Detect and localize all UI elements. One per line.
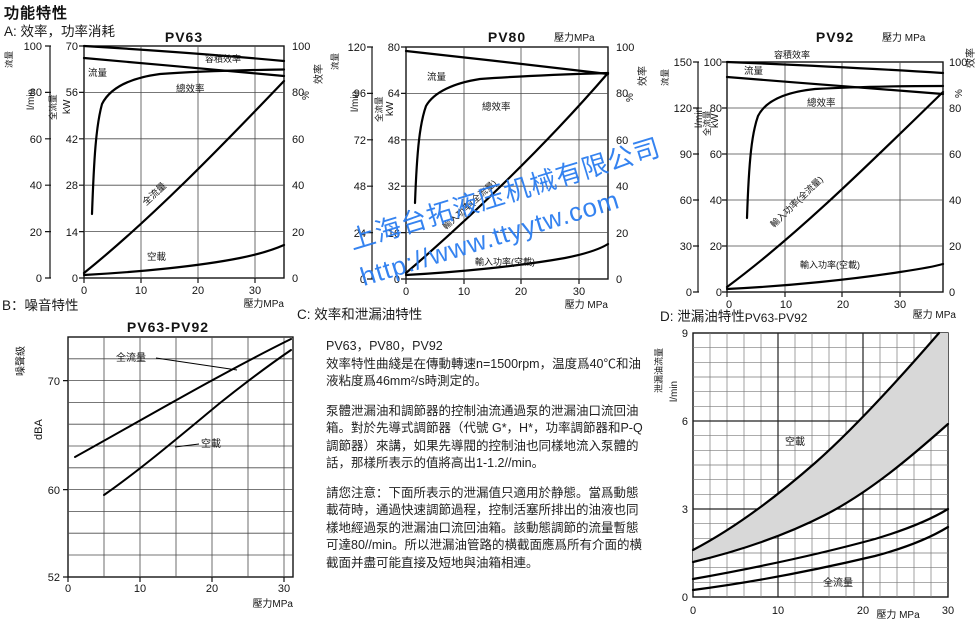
flow-curve-label: 流量 xyxy=(427,71,447,83)
eff-axis-title: 效率 xyxy=(312,64,325,84)
x-axis-title: 壓力MPa xyxy=(252,597,293,610)
axis-ticks xyxy=(63,381,284,582)
eff-tick: 40 xyxy=(949,195,961,207)
power-tick: 70 xyxy=(66,41,78,53)
power-axis-title: 全流量 xyxy=(48,94,58,120)
gridlines xyxy=(84,46,284,278)
power-tick: 16 xyxy=(388,228,400,240)
power-tick: 48 xyxy=(388,135,400,147)
x-tick: 20 xyxy=(206,583,218,595)
no-load-noise-curve xyxy=(104,350,291,495)
flow-axis-unit: l/min xyxy=(26,89,37,110)
section-c-text: PV63，PV80，PV92 效率特性曲綫是在傳動轉速n=1500rpm，温度爲… xyxy=(326,338,648,584)
flow-axis-title: 流量 xyxy=(660,68,670,86)
flow-tick: 24 xyxy=(354,228,366,240)
input-power-full-label: 全流量 xyxy=(140,180,169,209)
no-load-label: 空載 xyxy=(201,437,221,450)
paragraph-2: 泵體泄漏油和調節器的控制油流通過泵的泄漏油口流回油箱。對於先導式調節器（代號 G… xyxy=(326,403,648,473)
x-tick: 20 xyxy=(192,285,204,297)
x-tick: 20 xyxy=(515,286,527,298)
pv92-chart: PV92 壓力 MPa 容積效率 流量 總效率 輸入功率(全流量) 輸入功率(空… xyxy=(660,28,980,320)
flow-tick: 100 xyxy=(24,41,42,53)
axis-ticks xyxy=(693,62,900,297)
no-load-leader-line xyxy=(175,444,199,447)
eff-tick: 60 xyxy=(949,149,961,161)
eff-axis-title: 效率 xyxy=(964,48,977,68)
chart-title: PV92 xyxy=(816,29,854,45)
full-flow-noise-curve xyxy=(75,339,291,457)
flow-tick: 0 xyxy=(36,273,42,285)
x-tick: 10 xyxy=(780,299,792,311)
axis-ticks xyxy=(45,46,255,283)
power-tick: 20 xyxy=(710,241,722,253)
x-tick: 10 xyxy=(458,286,470,298)
pv80-chart: PV80 壓力MPa 流量 總效率 輸入功率(全流量) 輸入功率(空載) 流量 … xyxy=(330,28,660,320)
input-power-full-curve xyxy=(727,92,943,287)
power-tick: 56 xyxy=(66,87,78,99)
full-flow-label: 全流量 xyxy=(823,576,853,589)
gridlines xyxy=(727,62,943,292)
power-tick: 80 xyxy=(710,103,722,115)
total-efficiency-label: 總效率 xyxy=(176,83,205,95)
x-tick: 30 xyxy=(278,583,290,595)
input-power-idle-label: 輸入功率(空載) xyxy=(800,259,860,270)
flow-curve xyxy=(406,51,608,74)
power-axis-unit: kW xyxy=(710,113,721,128)
y-tick: 60 xyxy=(48,485,60,497)
power-tick: 0 xyxy=(72,273,78,285)
eff-tick: 40 xyxy=(616,181,628,193)
power-tick: 32 xyxy=(388,181,400,193)
eff-axis-unit: % xyxy=(954,89,965,98)
x-axis-title-top: 壓力 MPa xyxy=(882,31,926,44)
y-axis-title: 噪聲級 xyxy=(14,346,27,376)
flow-tick: 90 xyxy=(680,149,692,161)
x-tick: 0 xyxy=(81,285,87,297)
flow-tick: 0 xyxy=(686,287,692,299)
input-power-idle-curve xyxy=(84,245,284,275)
eff-tick: 0 xyxy=(616,274,622,286)
x-tick: 0 xyxy=(403,286,409,298)
total-efficiency-label: 總效率 xyxy=(482,101,511,113)
pv63-chart: PV63 容積效率 流量 總效率 全流量 空載 流量 100 80 60 40 … xyxy=(0,28,332,320)
datasheet-page: 功能特性 A: 效率，功率消耗 B：噪音特性 C: 效率和泄漏油特性 D: 泄漏… xyxy=(0,0,980,628)
no-load-label: 空載 xyxy=(785,435,805,448)
y-tick: 9 xyxy=(682,328,688,340)
input-power-full-curve xyxy=(84,81,284,273)
flow-tick: 120 xyxy=(674,103,692,115)
eff-axis-unit: % xyxy=(301,91,312,100)
flow-tick: 0 xyxy=(360,274,366,286)
power-tick: 40 xyxy=(710,195,722,207)
eff-tick: 40 xyxy=(292,180,304,192)
x-tick: 30 xyxy=(942,605,954,617)
leakage-chart: 空載 全流量 泄漏油流量 l/min 9 6 3 0 0 10 20 30 壓力… xyxy=(650,318,980,628)
eff-tick: 100 xyxy=(292,41,310,53)
eff-axis-title: 效率 xyxy=(636,66,649,86)
full-flow-leader-line xyxy=(156,358,237,370)
flow-axis-title: 流量 xyxy=(330,52,340,70)
y-tick: 70 xyxy=(48,376,60,388)
flow-tick: 60 xyxy=(680,195,692,207)
flow-tick: 150 xyxy=(674,57,692,69)
power-axis-unit: kW xyxy=(385,101,396,116)
x-tick: 30 xyxy=(249,285,261,297)
input-power-idle-label: 輸入功率(空載) xyxy=(475,256,535,267)
flow-axis-unit: l/min xyxy=(350,91,361,112)
chart-title: PV80 xyxy=(488,29,526,45)
y-tick: 3 xyxy=(682,504,688,516)
y-tick: 52 xyxy=(48,572,60,584)
x-tick: 30 xyxy=(894,299,906,311)
paragraph-1: 效率特性曲綫是在傳動轉速n=1500rpm，温度爲40℃和油液粘度爲46mm²/… xyxy=(326,356,648,391)
total-efficiency-curve xyxy=(747,86,943,218)
eff-tick: 20 xyxy=(949,241,961,253)
y-axis-unit: l/min xyxy=(669,381,680,402)
eff-tick: 20 xyxy=(292,227,304,239)
flow-tick: 72 xyxy=(354,135,366,147)
power-tick: 80 xyxy=(388,42,400,54)
x-tick: 20 xyxy=(837,299,849,311)
eff-tick: 60 xyxy=(292,134,304,146)
power-tick: 64 xyxy=(388,88,400,100)
x-axis-title: 壓力MPa xyxy=(243,297,284,310)
total-efficiency-label: 總效率 xyxy=(807,97,836,109)
flow-tick: 40 xyxy=(30,180,42,192)
x-axis-title-top: 壓力MPa xyxy=(554,31,595,44)
power-tick: 14 xyxy=(66,227,78,239)
paragraph-3: 請您注意：下面所表示的泄漏值只適用於静態。當爲動態載荷時，通過快速調節過程，控制… xyxy=(326,485,648,573)
y-tick: 0 xyxy=(682,592,688,604)
flow-tick: 20 xyxy=(30,227,42,239)
power-tick: 100 xyxy=(704,57,722,69)
power-axis-unit: kW xyxy=(62,99,73,114)
volumetric-efficiency-label: 容積效率 xyxy=(774,49,810,60)
input-power-full-label: 輸入功率(全流量) xyxy=(440,177,499,231)
chart-title: PV63-PV92 xyxy=(127,319,209,335)
flow-tick: 48 xyxy=(354,181,366,193)
x-tick: 10 xyxy=(135,285,147,297)
x-tick: 0 xyxy=(65,583,71,595)
input-power-full-label: 輸入功率(全流量) xyxy=(768,174,825,230)
chart-title: PV63 xyxy=(165,29,203,45)
flow-curve-label: 流量 xyxy=(744,65,764,77)
flow-tick: 30 xyxy=(680,241,692,253)
volumetric-efficiency-label: 容積效率 xyxy=(205,53,241,64)
x-tick: 0 xyxy=(690,605,696,617)
x-axis-title: 壓力 MPa xyxy=(565,298,609,311)
x-axis-title: 壓力 MPa xyxy=(876,608,920,621)
plot-frame xyxy=(84,46,284,278)
x-tick: 10 xyxy=(134,583,146,595)
eff-axis-unit: % xyxy=(625,93,636,102)
volumetric-efficiency-curve xyxy=(84,46,284,61)
flow-axis-title: 流量 xyxy=(4,50,14,68)
noise-chart: PV63-PV92 全流量 空載 噪聲級 70 60 52 dBA 0 10 2… xyxy=(0,318,332,628)
y-axis-title: 泄漏油流量 xyxy=(653,348,664,393)
eff-tick: 100 xyxy=(949,57,967,69)
y-tick: 6 xyxy=(682,416,688,428)
power-axis-title: 全流量 xyxy=(374,96,384,122)
eff-tick: 100 xyxy=(616,42,634,54)
eff-tick: 80 xyxy=(949,103,961,115)
power-tick: 42 xyxy=(66,134,78,146)
axis-ticks xyxy=(367,47,579,284)
x-tick: 10 xyxy=(772,605,784,617)
eff-tick: 60 xyxy=(616,135,628,147)
flow-curve-label: 流量 xyxy=(88,67,108,79)
model-list: PV63，PV80，PV92 xyxy=(326,338,648,356)
x-tick: 0 xyxy=(726,299,732,311)
plot-frame xyxy=(727,62,943,292)
full-flow-label: 全流量 xyxy=(116,351,146,364)
x-tick: 30 xyxy=(573,286,585,298)
eff-tick: 0 xyxy=(949,287,955,299)
eff-tick: 20 xyxy=(616,228,628,240)
input-power-idle-label: 空載 xyxy=(147,251,167,263)
power-tick: 28 xyxy=(66,180,78,192)
power-tick: 60 xyxy=(710,149,722,161)
eff-tick: 0 xyxy=(292,273,298,285)
power-tick: 0 xyxy=(716,287,722,299)
y-axis-unit: dBA xyxy=(33,419,45,440)
x-tick: 20 xyxy=(857,605,869,617)
flow-tick: 60 xyxy=(30,134,42,146)
flow-tick: 120 xyxy=(348,42,366,54)
power-tick: 0 xyxy=(394,274,400,286)
